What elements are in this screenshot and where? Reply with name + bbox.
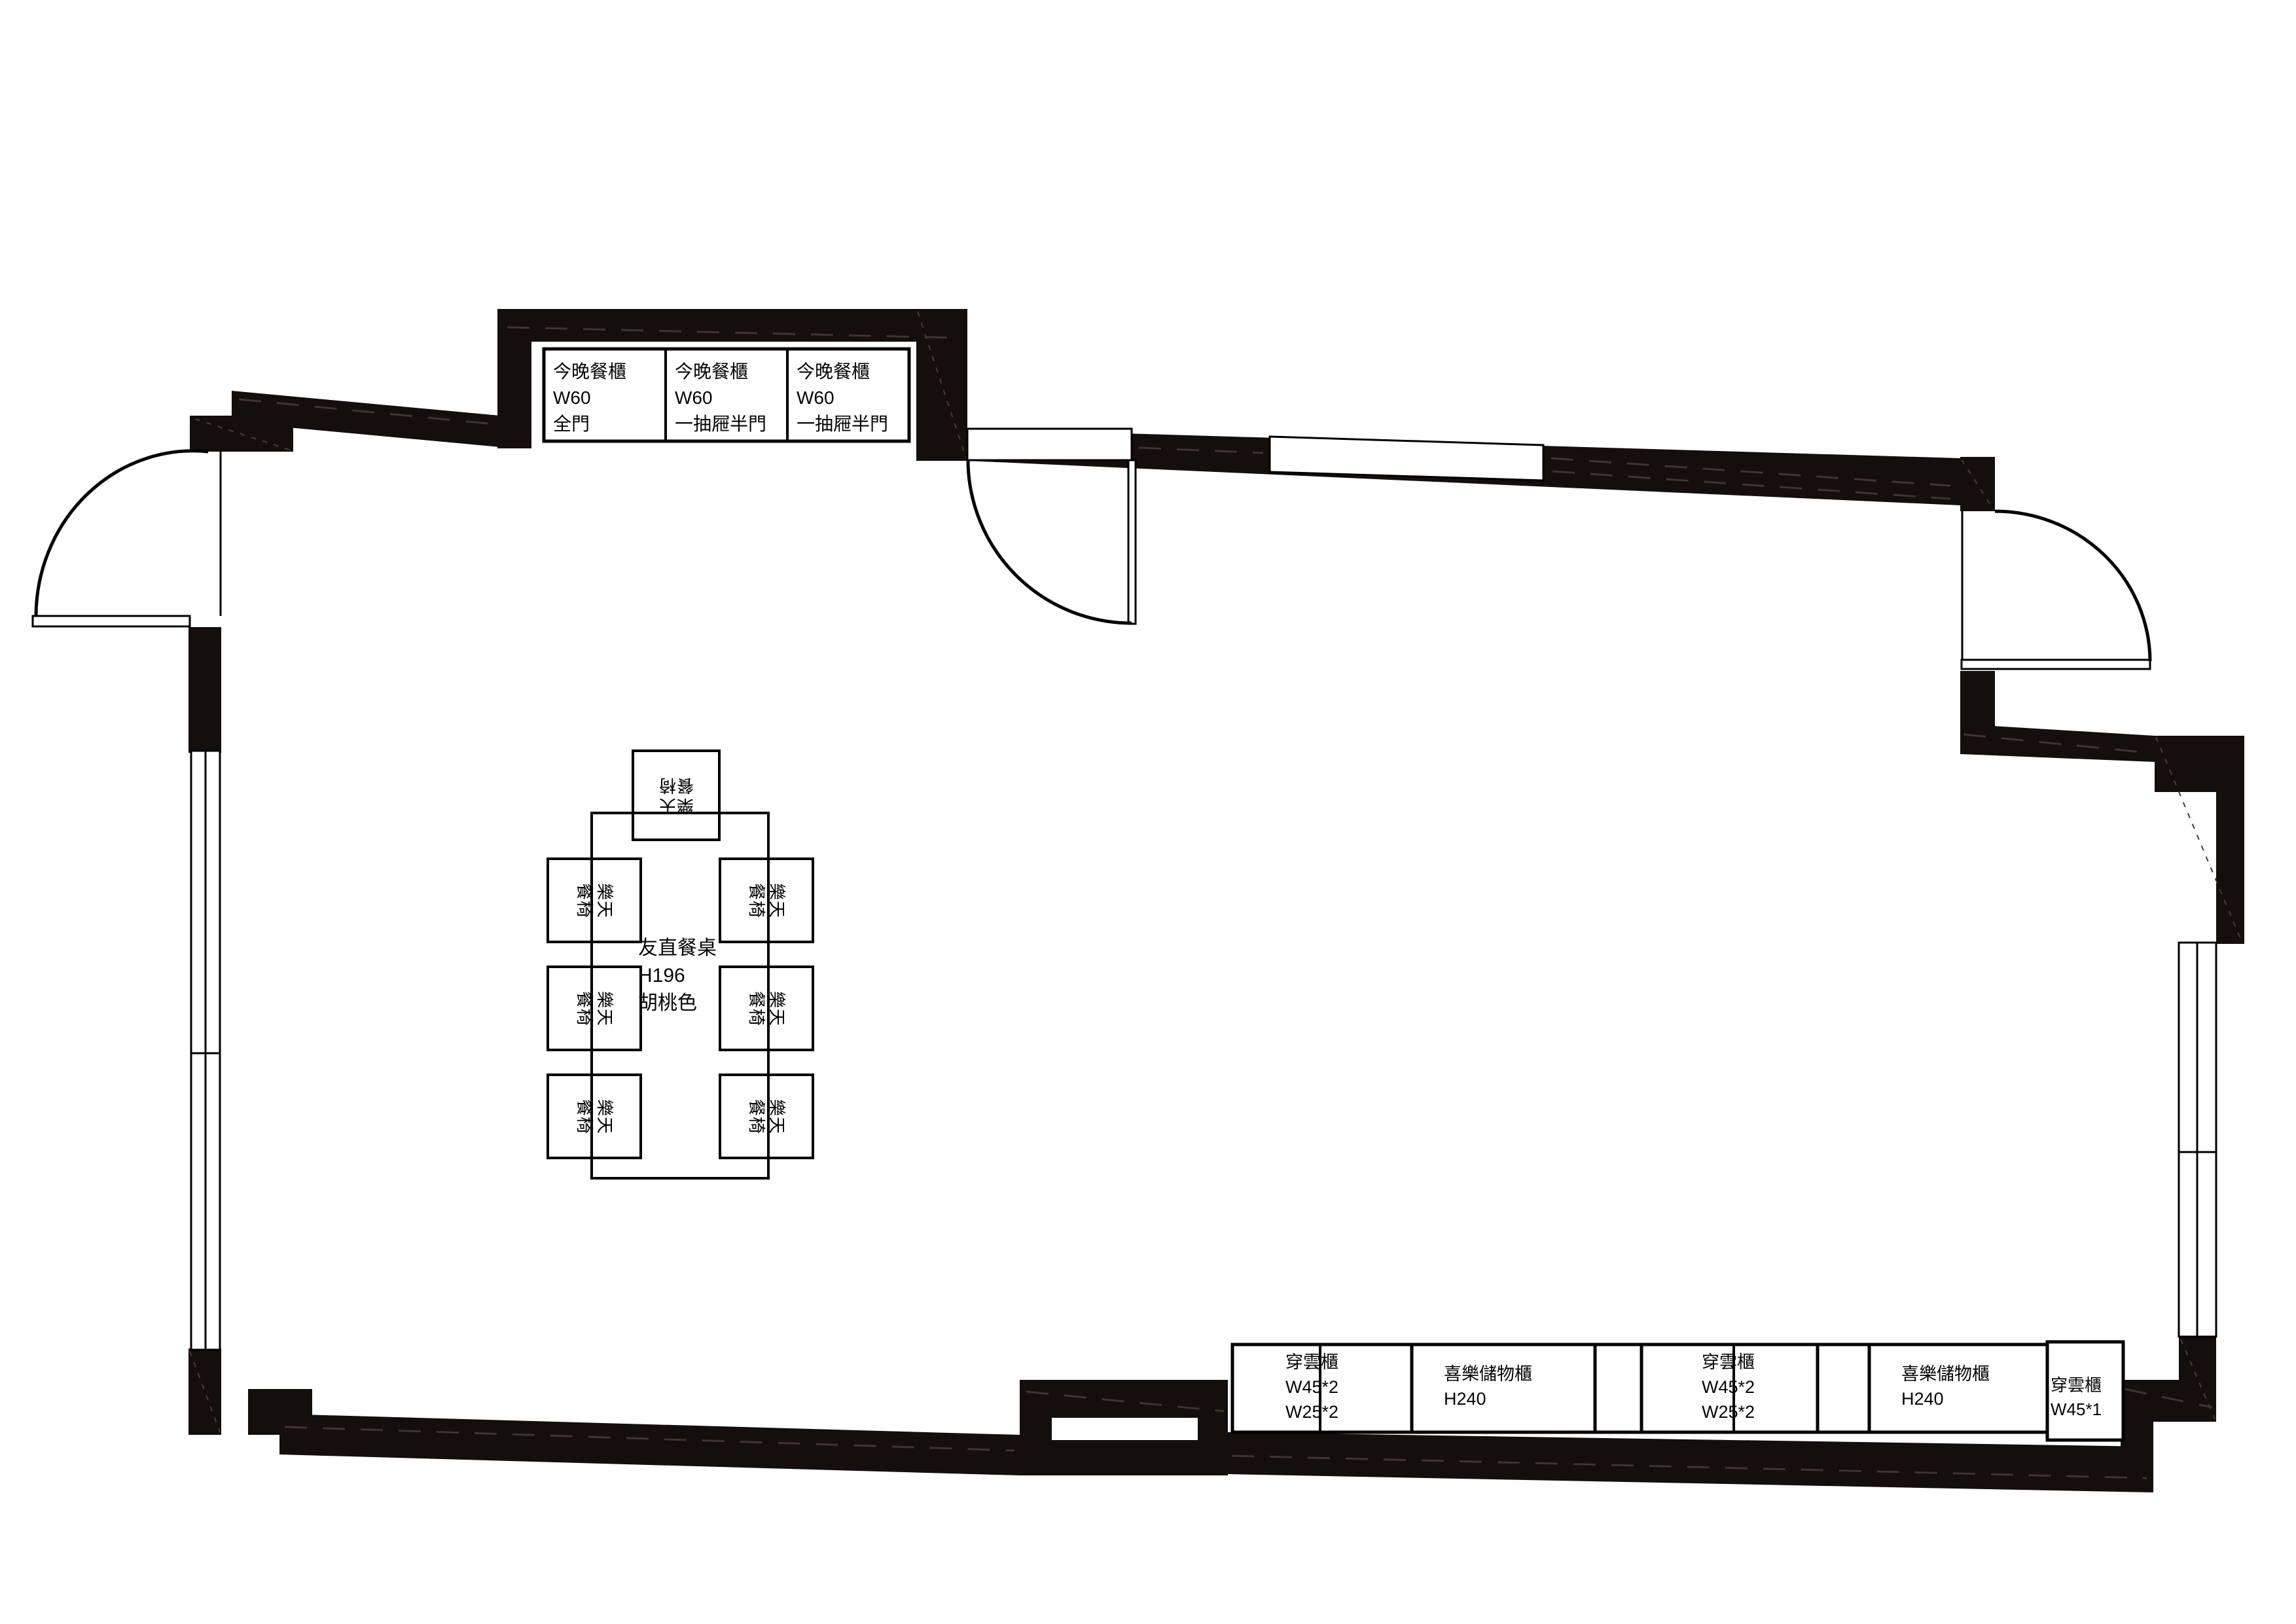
cabinet-bottom-2-line1: 喜樂儲物櫃 [1444,1364,1532,1384]
cabinet-bottom-3-line3: W25*2 [1702,1402,1755,1422]
chair-left-2: 樂天餐椅 [548,967,641,1050]
chair-top-label: 樂天餐椅 [658,775,694,816]
cabinet-top-1-line2: W60 [553,388,591,408]
cabinet-top-1-label: 今晚餐櫃W60全門 [553,359,626,437]
cabinet-top-2-line2: W60 [675,388,713,408]
window-left [191,751,220,1350]
cabinet-box-spacer-1 [1595,1344,1641,1432]
chair-left-3-label: 樂天餐椅 [574,1098,615,1134]
door-top-right-arc [1995,511,2150,661]
chair-left-2-label: 樂天餐椅 [574,990,615,1026]
wall-left-hinge [188,627,221,753]
cabinet-bottom-1-line2: W45*2 [1285,1377,1338,1397]
walls [188,309,2244,1492]
wall-right-stub [1960,671,1995,727]
chair-right-3: 樂天餐椅 [720,1075,813,1158]
cabinet-bottom-5-line1: 穿雲櫃 [2051,1375,2102,1395]
cabinet-top-2-label: 今晚餐櫃W60一抽屜半門 [675,359,766,437]
wall-right-band-low [2121,1380,2216,1422]
door-top-middle-leaf [1128,460,1136,624]
door-opening-top [967,429,1132,460]
chair-right-3-label: 樂天餐椅 [746,1098,787,1134]
cabinet-top-3-label: 今晚餐櫃W60一抽屜半門 [797,359,888,437]
chair-left-3: 樂天餐椅 [548,1075,641,1158]
chair-right-2: 樂天餐椅 [720,967,813,1050]
door-top-right-leaf [1962,660,2150,669]
door-top-right [1962,511,2150,669]
cabinet-bottom-4-line1: 喜樂儲物櫃 [1901,1364,1990,1384]
cabinet-top-2-line3: 一抽屜半門 [675,414,766,434]
chair-top: 樂天餐椅 [633,751,719,840]
cabinet-box-spacer-2 [1818,1344,1869,1432]
wall-bottom-right [1228,1432,2153,1492]
door-left [33,451,221,626]
cabinet-top-3-line2: W60 [797,388,834,408]
cabinet-bottom-3-line1: 穿雲櫃 [1702,1352,1755,1372]
door-left-leaf [33,616,190,626]
cabinet-top-1-line3: 全門 [553,414,590,434]
door-top-middle [968,460,1136,624]
cabinet-bottom-4-line2: H240 [1901,1389,1944,1409]
cabinet-bottom-1-line3: W25*2 [1285,1402,1338,1422]
cabinet-top-1-line1: 今晚餐櫃 [553,361,626,382]
cabinet-top-2-line1: 今晚餐櫃 [675,361,748,382]
chair-right-1: 樂天餐椅 [720,859,813,942]
window-top [1270,437,1543,480]
cabinet-bottom-2-line2: H240 [1444,1389,1486,1409]
cabinet-bottom-2-label: 喜樂儲物櫃H240 [1444,1362,1532,1411]
cabinet-bottom-3-line2: W45*2 [1702,1377,1755,1397]
floor-plan: 今晚餐櫃W60全門 今晚餐櫃W60一抽屜半門 今晚餐櫃W60一抽屜半門 穿雲櫃W… [0,0,2296,1624]
cabinet-top-3-line1: 今晚餐櫃 [797,361,870,382]
wall-right-chunk-top [2155,736,2244,792]
chair-right-1-label: 樂天餐椅 [746,882,787,918]
dining-table-name: 友直餐桌 [638,937,717,959]
door-left-arc [36,451,208,616]
wall-right-chunk-side [2216,792,2244,944]
dining-table-color: 胡桃色 [638,992,697,1014]
dining-table-label: 友直餐桌H196胡桃色 [638,935,717,1017]
cabinet-bottom-5-label: 穿雲櫃W45*1 [2051,1373,2102,1422]
chair-right-2-label: 樂天餐椅 [746,990,787,1026]
cabinet-top-3-line3: 一抽屜半門 [797,414,888,434]
dining-table-height: H196 [638,965,685,986]
cabinet-bottom-5-line2: W45*1 [2051,1399,2102,1419]
door-top-middle-arc [968,460,1132,623]
cabinet-bottom-1-line1: 穿雲櫃 [1285,1352,1338,1372]
wall-bottom-left [279,1414,1020,1475]
wall-protrusion-left [497,309,531,448]
window-right [2179,943,2216,1337]
chair-left-1-label: 樂天餐椅 [574,882,615,918]
wall-bottom-notch [1052,1418,1198,1440]
cabinet-bottom-1-label: 穿雲櫃W45*2W25*2 [1285,1350,1338,1424]
chair-left-1: 樂天餐椅 [548,859,641,942]
cabinet-bottom-4-label: 喜樂儲物櫃H240 [1901,1362,1990,1411]
cabinet-bottom-3-label: 穿雲櫃W45*2W25*2 [1702,1350,1755,1424]
